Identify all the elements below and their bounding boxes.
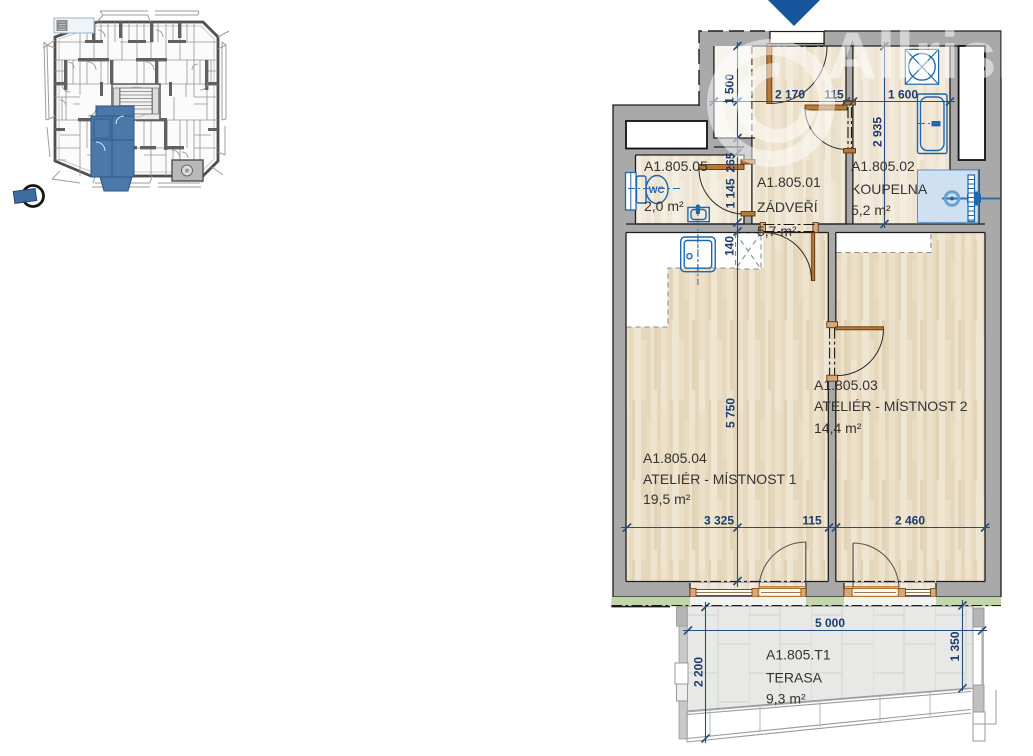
svg-text:A1.805.05: A1.805.05 (644, 158, 708, 174)
svg-text:Allrisk: Allrisk (828, 18, 1033, 92)
svg-text:2 200: 2 200 (692, 657, 706, 687)
svg-text:ZÁDVEŘÍ: ZÁDVEŘÍ (757, 199, 818, 215)
svg-text:5 750: 5 750 (724, 398, 738, 428)
svg-text:2 935: 2 935 (871, 117, 885, 147)
svg-text:2 170: 2 170 (775, 88, 805, 102)
svg-text:A1.805.02: A1.805.02 (851, 158, 915, 174)
svg-text:WC: WC (649, 185, 665, 196)
svg-text:115: 115 (802, 514, 822, 528)
svg-text:TERASA: TERASA (766, 670, 823, 686)
svg-text:2,0 m²: 2,0 m² (644, 198, 684, 214)
svg-text:ATELIÉR - MÍSTNOST 2: ATELIÉR - MÍSTNOST 2 (814, 398, 968, 414)
svg-text:5 000: 5 000 (815, 616, 845, 630)
svg-text:ATELIÉR - MÍSTNOST 1: ATELIÉR - MÍSTNOST 1 (643, 471, 797, 487)
svg-text:1 350: 1 350 (948, 631, 962, 661)
svg-text:9,3 m²: 9,3 m² (766, 691, 806, 707)
svg-text:19,5 m²: 19,5 m² (643, 491, 691, 507)
svg-text:A1.805.04: A1.805.04 (643, 450, 707, 466)
svg-text:140: 140 (723, 236, 737, 256)
svg-text:A1.805.01: A1.805.01 (757, 174, 821, 190)
svg-text:14,4 m²: 14,4 m² (814, 420, 862, 436)
svg-text:2 460: 2 460 (895, 514, 925, 528)
svg-text:A1.805.03: A1.805.03 (814, 377, 878, 393)
svg-text:A1.805.T1: A1.805.T1 (766, 647, 831, 663)
svg-text:5,7 m²: 5,7 m² (757, 223, 797, 239)
svg-text:3 325: 3 325 (704, 514, 734, 528)
svg-text:1 145: 1 145 (724, 178, 738, 208)
svg-text:5,2 m²: 5,2 m² (851, 202, 891, 218)
svg-text:KOUPELNA: KOUPELNA (851, 181, 928, 197)
